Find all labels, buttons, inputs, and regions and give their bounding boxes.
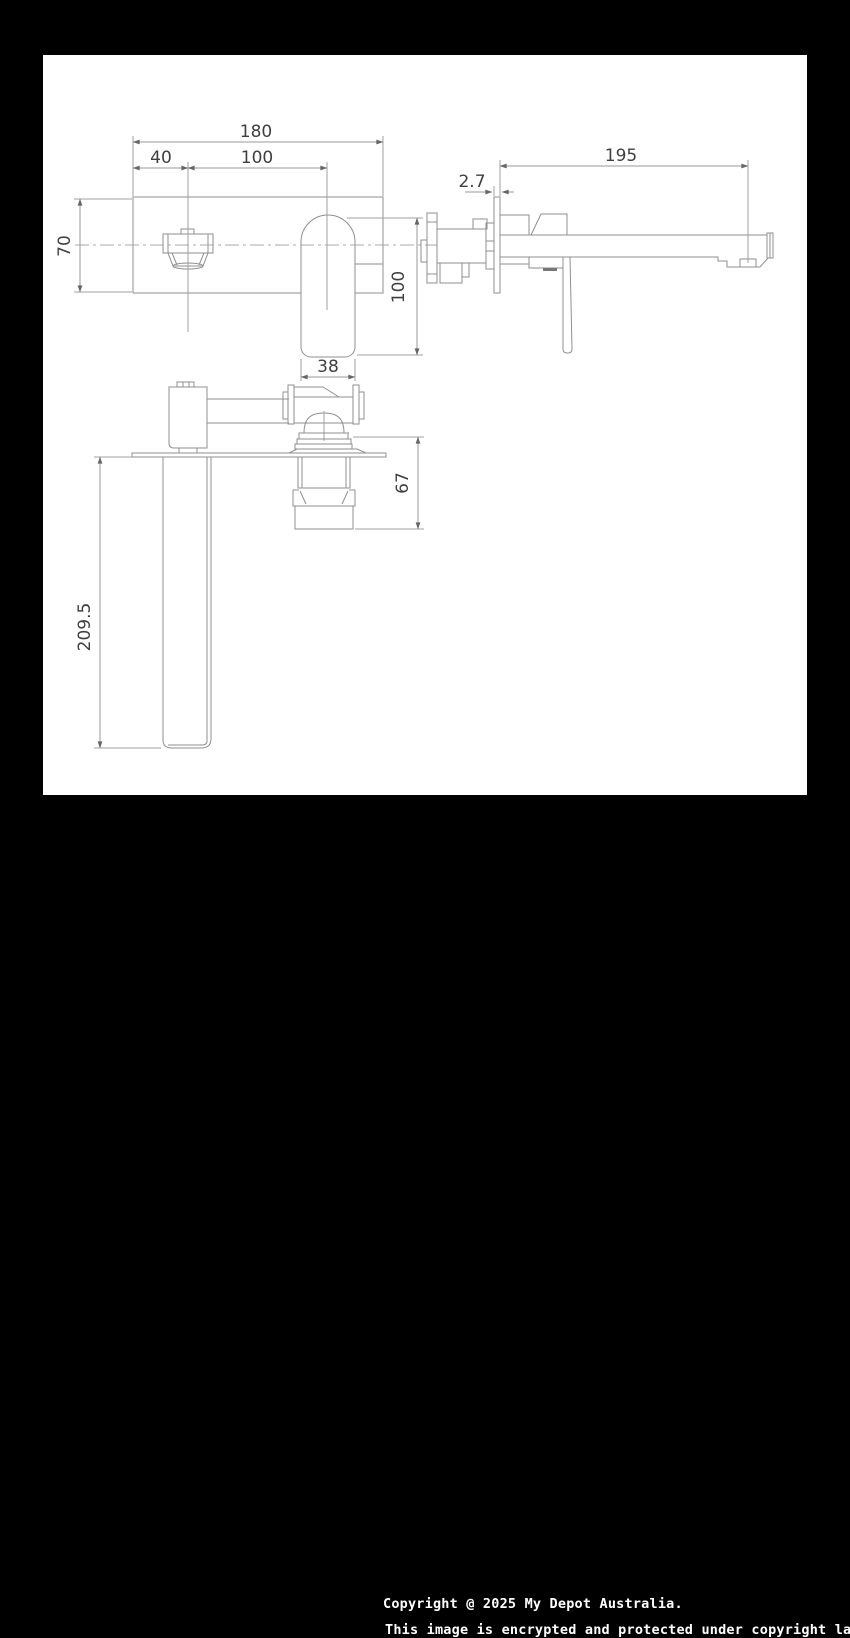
dim-overall-width: 180 — [240, 122, 272, 142]
top-handle-tab — [179, 448, 197, 453]
top-spout-inner — [168, 457, 207, 745]
ext-lines-195 — [500, 160, 748, 263]
dim-handle-height: 100 — [389, 271, 409, 303]
copyright-line-2: This image is encrypted and protected un… — [385, 1622, 850, 1638]
top-cartridge-base — [295, 506, 353, 529]
copyright-band: Copyright @ 2025 My Depot Australia. Thi… — [0, 795, 850, 850]
dim-spout-offset: 40 — [150, 148, 172, 168]
side-body-lower — [500, 257, 563, 268]
top-escutcheon-ring3 — [295, 444, 352, 449]
top-cartridge-collar — [293, 490, 355, 506]
side-valve-body — [437, 229, 486, 263]
dim-handle-width: 38 — [317, 357, 339, 377]
top-tee-right-cap — [359, 392, 364, 419]
ext-lines-100v — [347, 218, 423, 355]
side-valve-lower — [440, 263, 469, 283]
dim-spout-length: 209.5 — [75, 603, 95, 652]
top-handle-arm — [207, 399, 289, 423]
side-connector-bottom — [486, 251, 494, 269]
side-valve-cap-lines — [427, 222, 437, 274]
top-view-drawing: 209.5 67 — [75, 382, 424, 748]
side-handle-pivot — [500, 214, 567, 235]
technical-drawing: 180 40 100 70 100 38 — [0, 0, 850, 850]
side-spout-tube — [500, 235, 768, 267]
side-plate — [494, 197, 500, 293]
top-cartridge-upper — [298, 457, 350, 488]
top-spout-outline — [163, 457, 211, 748]
top-tee-right-flange — [353, 385, 359, 424]
ext-lines-67 — [353, 437, 424, 529]
front-handle-outline — [301, 215, 355, 357]
front-view-drawing: 180 40 100 70 100 38 — [55, 122, 437, 381]
side-inlet — [421, 240, 427, 262]
top-tee-left-cap — [283, 392, 288, 419]
top-escutcheon-flange — [289, 449, 366, 453]
side-valve-cap — [427, 213, 437, 283]
ext-lines-27 — [494, 186, 500, 196]
top-handle-grip — [169, 387, 207, 448]
dim-plate-thickness: 2.7 — [458, 172, 485, 192]
top-plate-strip — [132, 453, 386, 457]
side-view-drawing: 195 2.7 — [421, 146, 773, 353]
copyright-line-1: Copyright @ 2025 My Depot Australia. — [383, 1596, 683, 1612]
top-handle-notch — [177, 382, 194, 387]
dim-spout-to-handle: 100 — [241, 148, 273, 168]
top-cartridge-inner — [302, 457, 346, 488]
top-tee-left-flange — [288, 385, 294, 424]
dim-spout-reach: 195 — [605, 146, 637, 166]
side-set-screw — [543, 268, 557, 271]
side-handle-lever — [563, 257, 572, 353]
ext-lines-2095 — [94, 457, 161, 748]
dim-body-depth: 67 — [393, 472, 413, 494]
side-valve-upper — [473, 219, 487, 229]
dim-plate-height: 70 — [55, 235, 75, 257]
